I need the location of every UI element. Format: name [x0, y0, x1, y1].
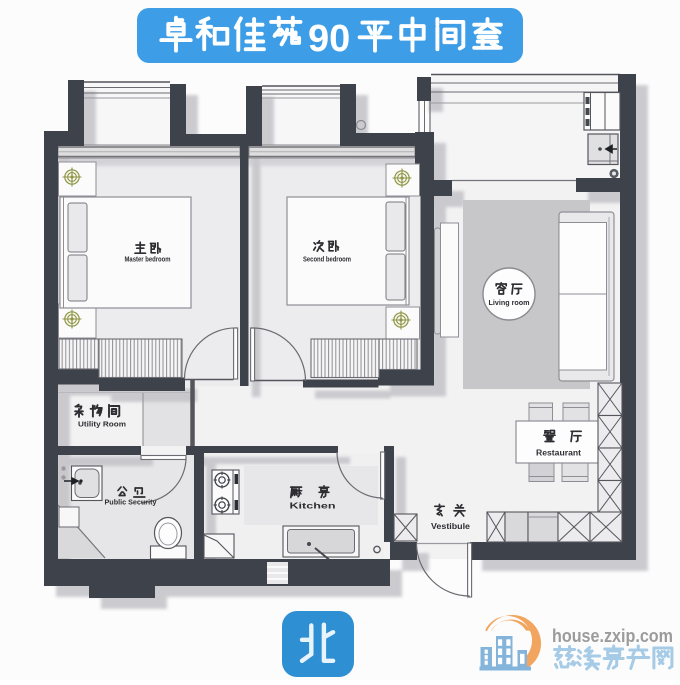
svg-text:house.zxip.com: house.zxip.com: [552, 625, 673, 646]
svg-text:90: 90: [308, 18, 350, 60]
svg-text:Living room: Living room: [489, 298, 530, 307]
svg-text:Restaurant: Restaurant: [536, 449, 581, 458]
svg-text:Kitchen: Kitchen: [290, 501, 336, 511]
svg-text:Utility Room: Utility Room: [78, 420, 126, 429]
svg-text:Public Security: Public Security: [105, 498, 158, 507]
svg-text:Vestibule: Vestibule: [431, 522, 471, 531]
svg-text:Master bedroom: Master bedroom: [125, 255, 171, 264]
svg-text:Second bedroom: Second bedroom: [303, 255, 351, 264]
